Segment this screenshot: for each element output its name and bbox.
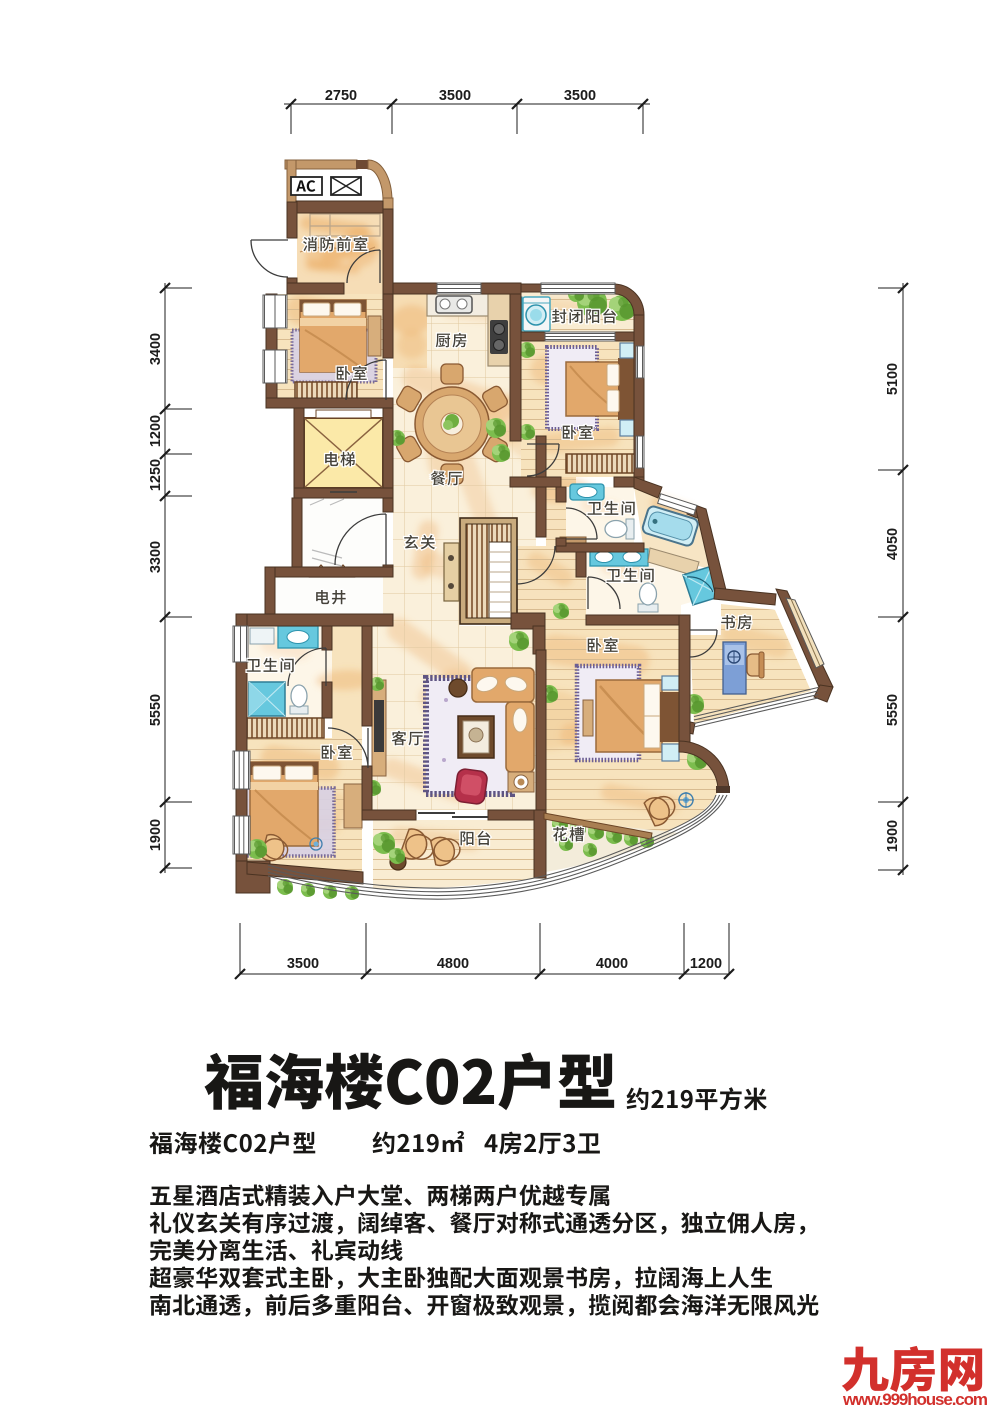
svg-text:4050: 4050	[885, 528, 901, 560]
svg-text:3400: 3400	[148, 333, 164, 365]
svg-text:5550: 5550	[148, 694, 164, 726]
svg-text:3500: 3500	[287, 956, 319, 972]
svg-text:4000: 4000	[596, 956, 628, 972]
svg-text:4800: 4800	[437, 956, 469, 972]
svg-text:1200: 1200	[148, 415, 164, 447]
svg-text:2750: 2750	[325, 88, 357, 104]
svg-text:1200: 1200	[690, 956, 722, 972]
svg-text:1250: 1250	[148, 459, 164, 491]
svg-text:www.999house.com: www.999house.com	[842, 1390, 988, 1409]
svg-text:3300: 3300	[148, 541, 164, 573]
svg-text:1900: 1900	[148, 819, 164, 851]
svg-text:5550: 5550	[885, 694, 901, 726]
svg-text:5100: 5100	[885, 363, 901, 395]
svg-text:3500: 3500	[439, 88, 471, 104]
svg-text:1900: 1900	[885, 820, 901, 852]
svg-text:3500: 3500	[564, 88, 596, 104]
